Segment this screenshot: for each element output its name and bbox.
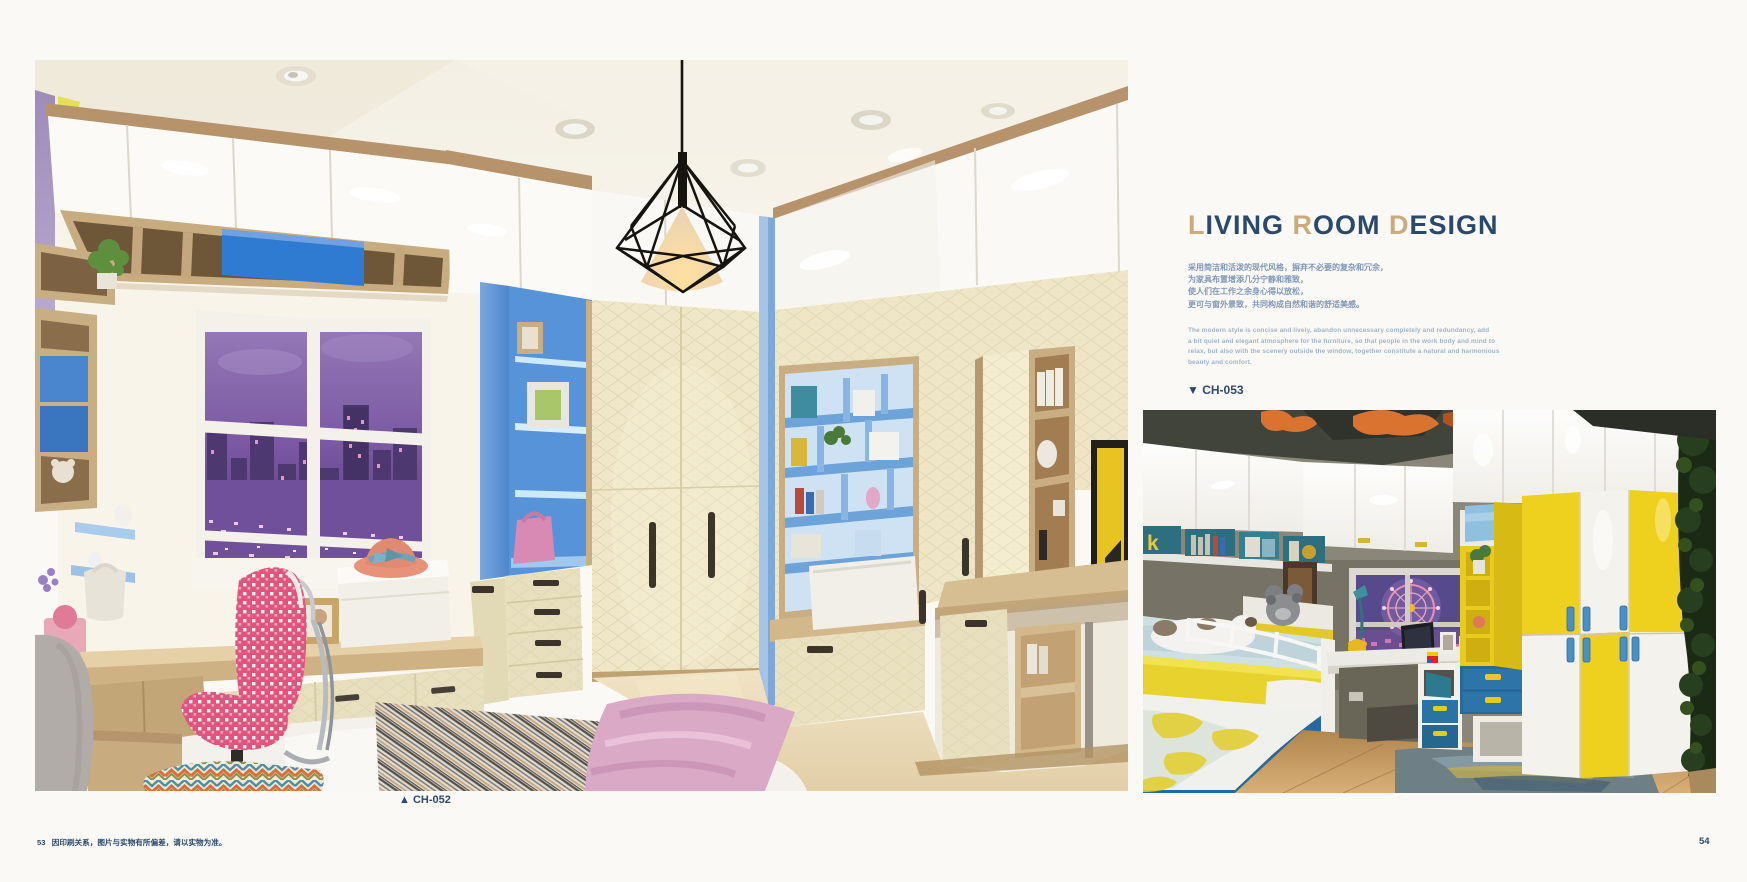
svg-text:k: k	[1147, 532, 1159, 555]
